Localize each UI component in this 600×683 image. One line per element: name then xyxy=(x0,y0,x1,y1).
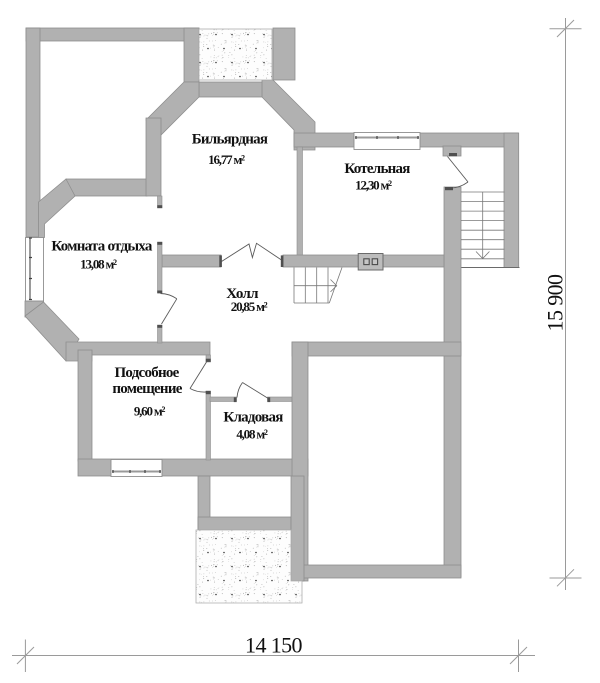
svg-text:Котельная: Котельная xyxy=(344,161,410,177)
svg-text:15 900: 15 900 xyxy=(543,274,568,332)
svg-text:Кладовая: Кладовая xyxy=(223,410,283,426)
svg-text:12,30 м²: 12,30 м² xyxy=(355,178,392,193)
svg-text:помещение: помещение xyxy=(112,381,182,397)
svg-text:Подсобное: Подсобное xyxy=(114,365,179,381)
svg-text:16,77 м²: 16,77 м² xyxy=(208,152,245,167)
svg-text:20,85 м²: 20,85 м² xyxy=(231,299,268,314)
svg-text:13,08 м²: 13,08 м² xyxy=(80,257,117,272)
svg-text:4,08 м²: 4,08 м² xyxy=(236,427,268,442)
svg-text:Бильярдная: Бильярдная xyxy=(192,132,268,148)
svg-text:Комната отдыха: Комната отдыха xyxy=(51,239,152,255)
svg-text:14 150: 14 150 xyxy=(245,633,303,658)
svg-text:9,60 м²: 9,60 м² xyxy=(134,404,166,419)
